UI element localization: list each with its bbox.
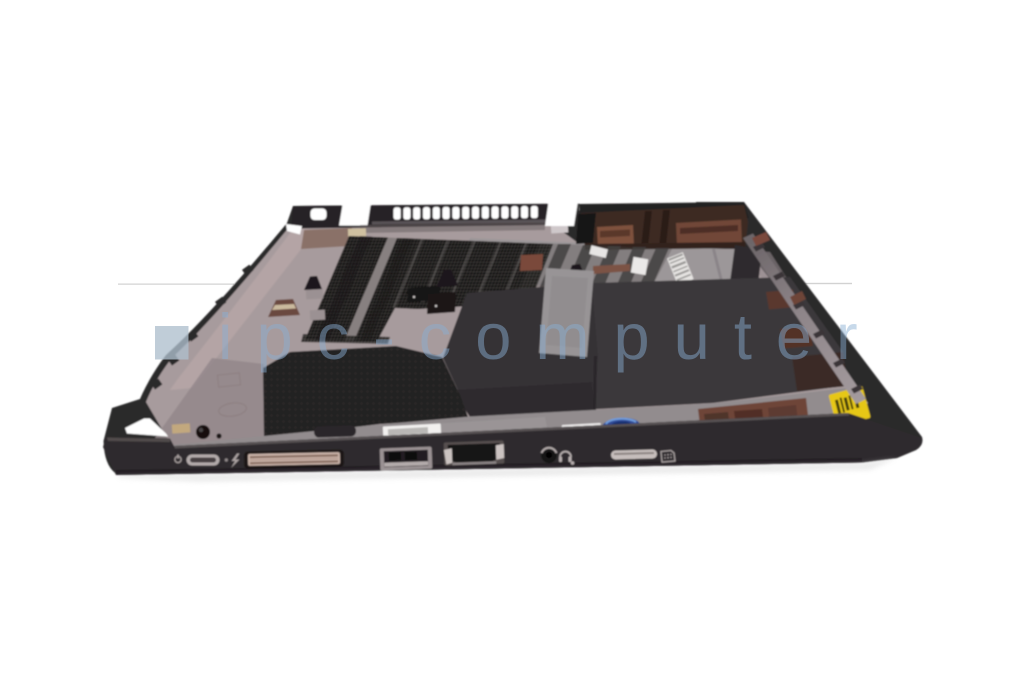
- svg-text:ipc-computer: ipc-computer: [218, 300, 882, 373]
